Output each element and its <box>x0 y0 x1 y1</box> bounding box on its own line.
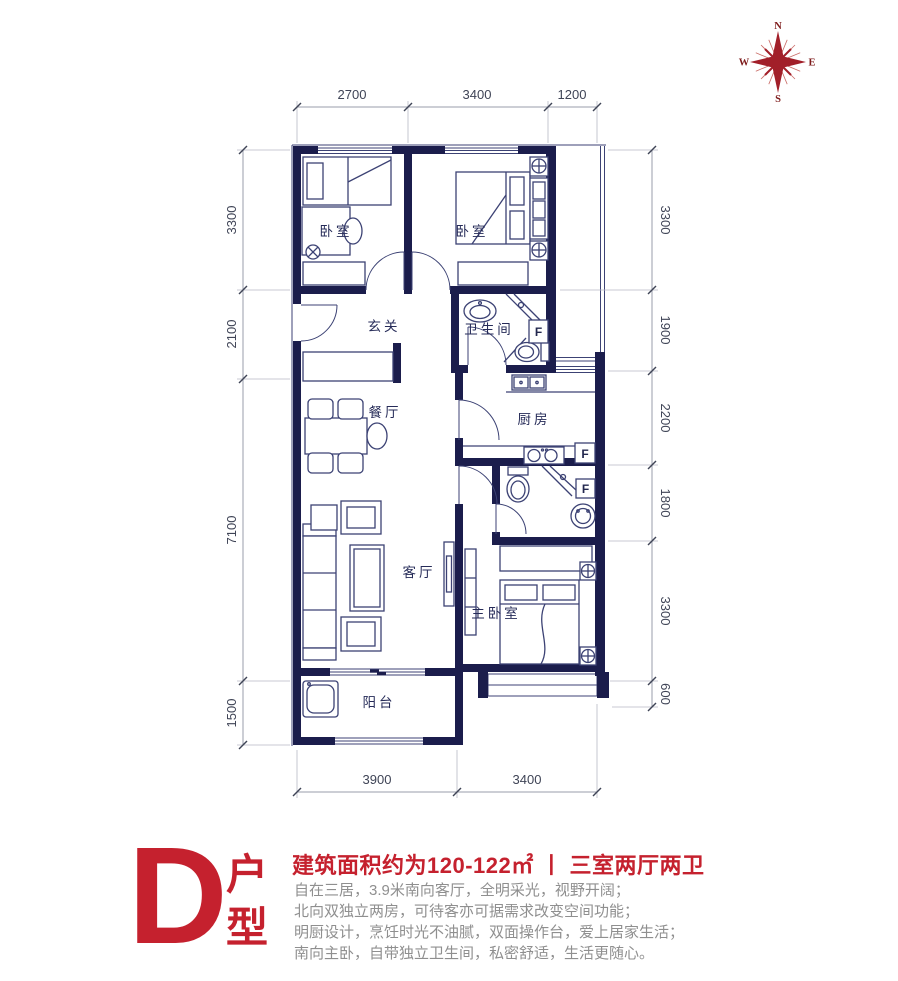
unit-description: 自在三居，3.9米南向客厅，全明采光，视野开阔； 北向双独立两房，可待客亦可据需… <box>294 880 684 964</box>
door-arc <box>459 400 499 440</box>
dimension-label: 3900 <box>363 772 392 787</box>
entry-door-arc <box>301 305 337 341</box>
lamp-icon <box>306 245 320 259</box>
coffee-table-icon <box>350 545 384 611</box>
dimension-label: 600 <box>658 683 673 705</box>
kitchen-sink-icon <box>512 375 546 390</box>
compass-east-label: E <box>808 58 815 69</box>
dimension-label: 2100 <box>224 320 239 349</box>
unit-letter: D <box>128 827 228 965</box>
door-arc <box>496 504 526 534</box>
sink-icon <box>464 300 496 322</box>
dimension-label: 7100 <box>224 516 239 545</box>
unit-type-label: 户 型 <box>222 849 272 955</box>
dimension-label: 1900 <box>658 316 673 345</box>
compass-north-label: N <box>774 21 782 32</box>
flue-label: F <box>581 447 588 461</box>
description-line: 自在三居，3.9米南向客厅，全明采光，视野开阔； <box>294 880 684 901</box>
flue-label: F <box>582 482 589 496</box>
description-line: 北向双独立两房，可待客亦可据需求改变空间功能； <box>294 901 684 922</box>
area-headline: 建筑面积约为120-122㎡ 丨 三室两厅两卫 <box>292 848 704 880</box>
room-label-entry: 玄关 <box>368 318 401 334</box>
nightstand-icon <box>530 157 548 176</box>
room-label-dining: 餐厅 <box>369 405 402 420</box>
tv-cabinet-icon <box>444 542 454 606</box>
compass-south-label: S <box>775 94 781 105</box>
room-label-bedroom-left: 卧室 <box>320 223 353 239</box>
single-bed-icon <box>303 157 391 205</box>
dimension-label: 2200 <box>658 404 673 433</box>
washing-machine-icon <box>303 681 338 717</box>
compass-rose-icon: N E S W <box>739 21 816 105</box>
armchair-icon <box>311 505 337 530</box>
flue-label: F <box>535 325 542 339</box>
closet-icon <box>303 262 365 285</box>
armchair-icon <box>341 617 381 651</box>
floorplan-page: F F F 卧室 卧室 卫生间 玄关 餐厅 厨房 客厅 主卧室 阳台 2700 … <box>0 0 898 981</box>
dimension-label: 3300 <box>224 206 239 235</box>
shoe-cabinet-icon <box>303 352 393 381</box>
door-arc <box>366 252 404 290</box>
room-label-kitchen: 厨房 <box>518 412 551 427</box>
armchair-icon <box>341 501 381 534</box>
room-label-master-bedroom: 主卧室 <box>471 605 521 621</box>
door-arc <box>412 252 450 290</box>
unit-type-char-top: 户 <box>222 849 272 902</box>
room-label-balcony: 阳台 <box>363 695 396 710</box>
wardrobe-icon <box>500 546 592 571</box>
room-label-living: 客厅 <box>403 564 436 580</box>
nightstand-icon <box>580 647 596 665</box>
description-line: 明厨设计，烹饪时光不油腻，双面操作台，爱上居家生活； <box>294 922 684 943</box>
door-arc <box>459 466 497 504</box>
dimension-label: 3400 <box>463 87 492 102</box>
unit-type-char-bottom: 型 <box>222 902 272 955</box>
dimension-label: 1500 <box>224 699 239 728</box>
wardrobe-icon <box>530 178 548 239</box>
nightstand-icon <box>580 562 596 580</box>
dimension-label: 1200 <box>558 87 587 102</box>
stove-icon <box>524 447 564 464</box>
toilet-icon <box>507 467 529 502</box>
compass-west-label: W <box>739 58 750 69</box>
description-line: 南向主卧，自带独立卫生间，私密舒适，生活更随心。 <box>294 943 684 964</box>
sofa-icon <box>303 524 336 660</box>
room-label-bathroom: 卫生间 <box>464 322 514 337</box>
flue-boxes: F F F <box>529 320 595 498</box>
dimension-label: 3400 <box>513 772 542 787</box>
dresser-icon <box>465 549 476 635</box>
closet-icon <box>458 262 528 285</box>
shower-icon <box>542 466 576 496</box>
dimension-label: 3300 <box>658 597 673 626</box>
room-label-bedroom-right: 卧室 <box>456 223 489 239</box>
dimension-label: 2700 <box>338 87 367 102</box>
sink-icon <box>571 504 595 528</box>
nightstand-icon <box>530 241 548 260</box>
dimension-label: 1800 <box>658 489 673 518</box>
toilet-icon <box>515 342 549 362</box>
dimension-label: 3300 <box>658 206 673 235</box>
double-bed-icon <box>500 580 579 664</box>
